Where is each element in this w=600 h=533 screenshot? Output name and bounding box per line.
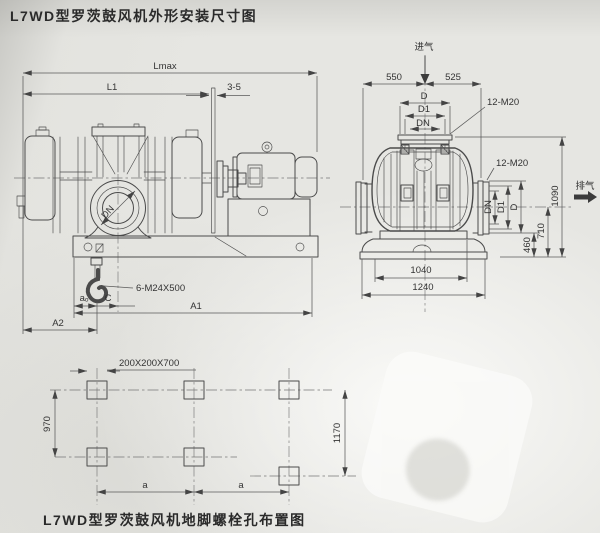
pitch-1170-label: 1170 bbox=[332, 423, 343, 443]
side-d-label: D bbox=[509, 203, 520, 210]
pitch-970-label: 970 bbox=[42, 416, 53, 432]
side-dn-label: DN bbox=[483, 200, 494, 214]
c-label: C bbox=[105, 293, 112, 304]
side-d1-label: D1 bbox=[496, 201, 507, 213]
w1040-label: 1040 bbox=[410, 265, 431, 276]
w1240-label: 1240 bbox=[412, 282, 433, 293]
side-view: DN bbox=[14, 61, 330, 334]
engineering-drawing: DN bbox=[0, 0, 600, 533]
base-plate bbox=[73, 236, 318, 257]
h460-label: 460 bbox=[522, 237, 533, 253]
coupling-gap-label: 3-5 bbox=[227, 82, 241, 93]
coupling bbox=[217, 161, 246, 197]
end-pedestal bbox=[380, 231, 467, 239]
h1090-label: 1090 bbox=[550, 185, 561, 206]
port-dn-label: DN bbox=[99, 203, 116, 221]
a0-label: aₒ bbox=[80, 293, 89, 304]
outlet-label: 排气 bbox=[575, 180, 595, 192]
foundation-view: 200X200X700 970 1170 a a bbox=[42, 358, 356, 505]
right-silencer-tank bbox=[172, 137, 202, 218]
gauge-rod bbox=[212, 88, 216, 233]
d1-label: D1 bbox=[418, 104, 430, 115]
a2-label: A2 bbox=[52, 318, 64, 329]
frame-columns bbox=[53, 137, 172, 233]
outlet-arrow bbox=[574, 191, 597, 203]
pitch-a-left-label: a bbox=[142, 480, 148, 491]
casing-outline bbox=[372, 148, 473, 231]
motor bbox=[233, 142, 317, 199]
end-base-plate bbox=[360, 252, 487, 259]
motor-block bbox=[228, 199, 310, 236]
anchor-bolt bbox=[88, 258, 106, 301]
a1-label: A1 bbox=[190, 301, 202, 312]
l1-label: L1 bbox=[107, 82, 118, 93]
offset-550-label: 550 bbox=[386, 72, 402, 83]
blower-end-body bbox=[356, 135, 489, 259]
foundation-centerlines bbox=[50, 368, 356, 505]
blower-side-body: DN bbox=[17, 88, 318, 301]
bolts-top-label: 12-M20 bbox=[487, 97, 519, 108]
anchor-bolt-label: 6-M24X500 bbox=[136, 283, 185, 294]
base-skirt bbox=[362, 239, 485, 252]
left-port-flange bbox=[356, 182, 372, 234]
dn-label: DN bbox=[416, 118, 430, 129]
bolts-side-label: 12-M20 bbox=[496, 158, 528, 169]
anchor-bolt-holes bbox=[87, 381, 299, 485]
h710-label: 710 bbox=[536, 223, 547, 239]
hole-spec-label: 200X200X700 bbox=[119, 358, 179, 369]
inlet-flange-dimensions: D D1 DN bbox=[400, 91, 450, 134]
lmax-label: Lmax bbox=[153, 61, 176, 72]
pitch-a-right-label: a bbox=[238, 480, 244, 491]
d-label: D bbox=[421, 91, 428, 102]
motor-eyebolt bbox=[262, 142, 272, 152]
end-base-dimensions: 1040 1240 bbox=[362, 240, 485, 299]
gearbox-tower bbox=[92, 124, 148, 177]
offset-525-label: 525 bbox=[445, 72, 461, 83]
end-view: 进气 550 525 D D1 DN 12-M20 bbox=[340, 41, 597, 312]
inlet-label: 进气 bbox=[414, 41, 434, 53]
